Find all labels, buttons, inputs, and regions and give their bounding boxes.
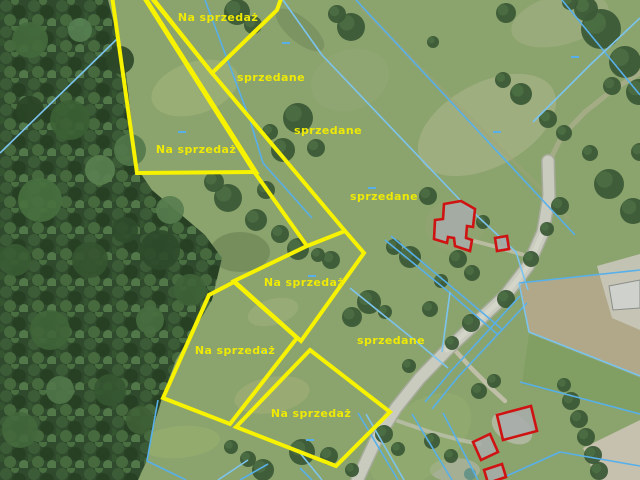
tree-clump-highlight [552, 198, 562, 208]
cadastral-tick [178, 131, 186, 133]
label-na-sprzedaz: Na sprzedaż [271, 407, 351, 420]
tree-clump-highlight [272, 226, 282, 236]
tree-clump-highlight [558, 379, 566, 387]
tree-clump-highlight [285, 105, 302, 122]
tree-clump-highlight [344, 309, 355, 320]
tree-clump-highlight [308, 140, 318, 150]
forest-canopy-blob [46, 376, 74, 404]
forest-canopy-blob [18, 178, 62, 222]
aerial-map-viewport[interactable]: Na sprzedażsprzedanesprzedaneNa sprzedaż… [0, 0, 640, 480]
label-sprzedane: sprzedane [294, 124, 362, 137]
forest-canopy-blob [140, 230, 180, 270]
tree-clump-highlight [524, 252, 533, 261]
tree-clump-highlight [596, 171, 613, 188]
forest-canopy-blob [16, 96, 44, 124]
tree-clump-highlight [346, 464, 354, 472]
tree-clump-highlight [225, 441, 233, 449]
tree-clump-highlight [498, 5, 509, 16]
forest-canopy-blob [94, 374, 126, 406]
tree-clump-highlight [512, 85, 524, 97]
tree-clump-highlight [583, 146, 592, 155]
forest-canopy-blob [50, 100, 90, 140]
tree-clump-highlight [465, 266, 474, 275]
tree-clump-highlight [496, 73, 505, 82]
tree-clump-highlight [541, 223, 549, 231]
forest-canopy-blob [156, 196, 184, 224]
forest-canopy-blob [68, 18, 92, 42]
red-building-outline-shed-north [495, 236, 509, 251]
tree-clump-highlight [591, 463, 601, 473]
label-na-sprzedaz: Na sprzedaż [178, 11, 258, 24]
tree-clump-highlight [488, 375, 496, 383]
tree-clump-highlight [321, 448, 331, 458]
tree-clump-highlight [450, 251, 460, 261]
tree-clump-highlight [498, 291, 508, 301]
label-na-sprzedaz: Na sprzedaż [156, 143, 236, 156]
aerial-map[interactable]: Na sprzedażsprzedanesprzedaneNa sprzedaż… [0, 0, 640, 480]
label-sprzedane: sprzedane [237, 71, 305, 84]
cadastral-tick [368, 187, 376, 189]
tree-clump-highlight [359, 292, 372, 305]
tree-clump-highlight [423, 302, 432, 311]
tree-clump-highlight [571, 411, 581, 421]
label-na-sprzedaz: Na sprzedaż [195, 344, 275, 357]
tree-clump-highlight [446, 337, 454, 345]
forest-canopy-blob [12, 22, 48, 58]
forest-canopy-blob [114, 134, 146, 166]
tree-clump-highlight [329, 6, 339, 16]
tree-clump-highlight [241, 452, 250, 461]
label-na-sprzedaz: Na sprzedaż [264, 276, 344, 289]
tree-clump-highlight [578, 429, 588, 439]
forest-canopy-blob [30, 310, 70, 350]
tree-clump-highlight [392, 443, 400, 451]
tree-clump-highlight [206, 174, 217, 185]
forest-canopy-blob [72, 242, 108, 278]
forest-canopy-blob [112, 217, 138, 243]
forest-canopy-blob [85, 155, 115, 185]
forest-canopy-blob [2, 412, 38, 448]
forest-canopy-blob [136, 306, 164, 334]
forest-canopy-blob [0, 244, 31, 276]
cadastral-tick [306, 439, 314, 441]
cadastral-tick [571, 56, 579, 58]
label-sprzedane: sprzedane [350, 190, 418, 203]
label-sprzedane: sprzedane [357, 334, 425, 347]
tree-clump-highlight [472, 384, 481, 393]
tree-clump-highlight [312, 249, 320, 257]
forest-canopy-blob [126, 406, 154, 434]
tree-clump-highlight [557, 126, 566, 135]
forest-canopy-blob [174, 274, 206, 306]
tree-clump-highlight [247, 211, 259, 223]
cadastral-tick [282, 42, 290, 44]
tree-clump-highlight [445, 450, 453, 458]
tree-clump-highlight [403, 360, 411, 368]
tree-clump-highlight [420, 188, 430, 198]
tree-clump-highlight [604, 78, 614, 88]
cadastral-tick [493, 131, 501, 133]
tree-clump-highlight [428, 37, 435, 44]
tree-clump-highlight [463, 315, 473, 325]
tree-clump-highlight [585, 447, 595, 457]
tree-clump-highlight [622, 200, 636, 214]
